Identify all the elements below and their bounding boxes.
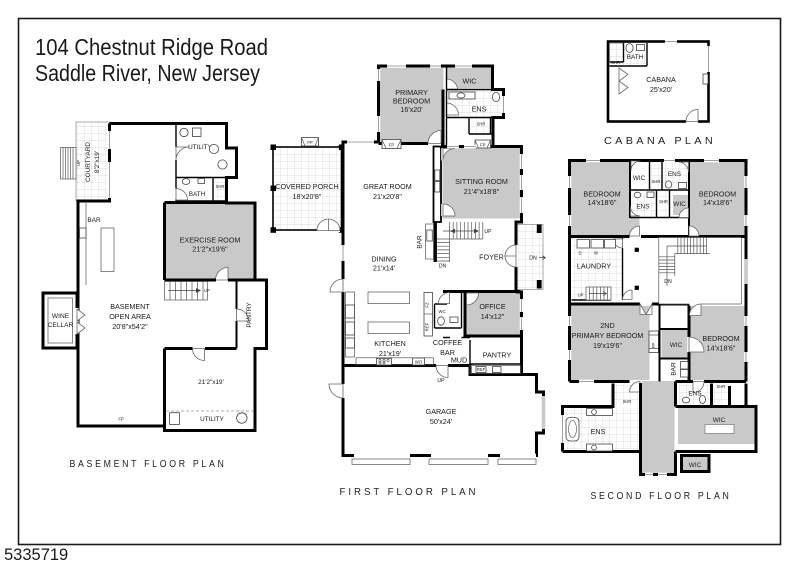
svg-text:SHR: SHR — [717, 384, 726, 389]
svg-text:104 Chestnut Ridge Road: 104 Chestnut Ridge Road — [35, 34, 268, 60]
svg-text:21'x19': 21'x19' — [379, 349, 402, 358]
svg-text:21'x14': 21'x14' — [373, 264, 396, 273]
svg-text:FP: FP — [480, 143, 486, 148]
svg-text:WINE: WINE — [52, 313, 70, 320]
svg-text:SHR: SHR — [611, 60, 620, 65]
svg-text:MUD: MUD — [451, 356, 467, 365]
svg-text:WC: WC — [439, 309, 446, 314]
svg-text:ENS: ENS — [636, 204, 649, 211]
svg-text:SHR: SHR — [652, 179, 661, 184]
svg-text:UP: UP — [437, 378, 445, 384]
svg-text:FP: FP — [651, 343, 656, 349]
svg-text:Saddle River, New Jersey: Saddle River, New Jersey — [35, 60, 260, 86]
svg-text:UP: UP — [578, 293, 584, 298]
svg-text:14'x12": 14'x12" — [481, 312, 505, 321]
svg-text:PANTRY: PANTRY — [483, 351, 512, 360]
svg-text:SECOND FLOOR PLAN: SECOND FLOOR PLAN — [591, 490, 732, 502]
svg-text:19'x19'6": 19'x19'6" — [593, 341, 622, 350]
svg-text:FZ: FZ — [424, 302, 429, 308]
svg-text:21'2"x19': 21'2"x19' — [198, 379, 224, 386]
svg-text:UP: UP — [204, 288, 210, 293]
svg-text:WIC: WIC — [633, 175, 646, 182]
svg-text:WIC: WIC — [463, 77, 477, 86]
svg-text:LAUNDRY: LAUNDRY — [577, 262, 611, 271]
svg-text:20'8"x54'2": 20'8"x54'2" — [112, 322, 148, 331]
svg-text:REF: REF — [424, 322, 429, 331]
svg-text:COFFEE: COFFEE — [433, 338, 462, 347]
svg-text:SITTING ROOM: SITTING ROOM — [455, 177, 508, 186]
svg-text:BATH: BATH — [189, 191, 206, 198]
svg-text:WO: WO — [415, 360, 423, 365]
svg-text:CELLAR: CELLAR — [48, 322, 74, 329]
svg-text:D: D — [578, 251, 581, 256]
svg-text:BASEMENT FLOOR PLAN: BASEMENT FLOOR PLAN — [70, 458, 227, 470]
svg-text:50'x24': 50'x24' — [430, 417, 453, 426]
svg-text:OPEN AREA: OPEN AREA — [109, 312, 151, 321]
svg-text:14'x18'6": 14'x18'6" — [703, 198, 732, 207]
svg-text:UP: UP — [484, 229, 492, 235]
svg-text:COURTYARD: COURTYARD — [85, 142, 92, 182]
svg-text:W: W — [594, 251, 598, 256]
svg-text:COVERED PORCH: COVERED PORCH — [275, 182, 339, 191]
svg-text:EXERCISE ROOM: EXERCISE ROOM — [180, 236, 241, 245]
svg-text:5335719: 5335719 — [4, 546, 68, 564]
svg-text:SHR: SHR — [623, 399, 632, 404]
svg-text:21'x20'8": 21'x20'8" — [373, 192, 402, 201]
svg-text:BASEMENT: BASEMENT — [110, 302, 150, 311]
svg-text:ENS: ENS — [591, 427, 606, 436]
svg-text:GARAGE: GARAGE — [426, 407, 457, 416]
svg-text:14'x18'6": 14'x18'6" — [707, 344, 736, 353]
svg-text:KITCHEN: KITCHEN — [374, 339, 406, 348]
svg-text:DN: DN — [439, 264, 447, 270]
svg-text:2ND: 2ND — [600, 321, 614, 330]
svg-text:ENS: ENS — [668, 171, 681, 178]
svg-text:ENS: ENS — [472, 105, 487, 114]
svg-text:BAR: BAR — [671, 362, 678, 376]
svg-text:25'x20': 25'x20' — [650, 85, 673, 94]
svg-text:18'x20'8": 18'x20'8" — [293, 192, 322, 201]
svg-text:FOYER: FOYER — [479, 253, 504, 262]
svg-text:OFFICE: OFFICE — [479, 302, 506, 311]
svg-text:WIC: WIC — [673, 201, 686, 208]
svg-text:CABANA PLAN: CABANA PLAN — [604, 135, 716, 147]
svg-text:UP: UP — [76, 160, 81, 166]
svg-text:21'4"x18'8": 21'4"x18'8" — [464, 187, 500, 196]
svg-text:GREAT ROOM: GREAT ROOM — [363, 182, 411, 191]
svg-text:DINING: DINING — [371, 255, 397, 264]
svg-text:BATH: BATH — [627, 54, 644, 61]
svg-text:UTILITY: UTILITY — [188, 144, 213, 151]
svg-text:16'x20': 16'x20' — [400, 105, 423, 114]
svg-text:DN: DN — [529, 256, 537, 262]
svg-text:DN: DN — [664, 279, 672, 285]
svg-text:FP: FP — [307, 140, 313, 145]
svg-text:WIC: WIC — [689, 462, 702, 469]
svg-text:PANTRY: PANTRY — [246, 302, 253, 328]
svg-text:21'2"x19'6": 21'2"x19'6" — [192, 245, 228, 254]
svg-text:FP: FP — [389, 143, 395, 148]
svg-text:BEDROOM: BEDROOM — [702, 334, 739, 343]
svg-text:WIC: WIC — [713, 417, 726, 424]
svg-text:BAR: BAR — [417, 235, 424, 249]
svg-text:CABANA: CABANA — [646, 75, 676, 84]
svg-text:REF: REF — [477, 367, 486, 372]
svg-text:SHR: SHR — [477, 122, 486, 127]
svg-text:WIC: WIC — [670, 342, 683, 349]
svg-text:SHR: SHR — [216, 184, 225, 189]
svg-text:FIRST FLOOR PLAN: FIRST FLOOR PLAN — [340, 486, 479, 498]
svg-text:SHR: SHR — [659, 199, 668, 204]
svg-text:ENS: ENS — [688, 391, 701, 398]
svg-text:UTILITY: UTILITY — [200, 416, 225, 423]
svg-text:PRIMARY BEDROOM: PRIMARY BEDROOM — [572, 331, 644, 340]
svg-text:BAR: BAR — [87, 217, 101, 224]
svg-text:FP: FP — [118, 417, 124, 422]
svg-text:8'2"x19': 8'2"x19' — [94, 151, 101, 173]
svg-text:14'x18'6": 14'x18'6" — [588, 198, 617, 207]
